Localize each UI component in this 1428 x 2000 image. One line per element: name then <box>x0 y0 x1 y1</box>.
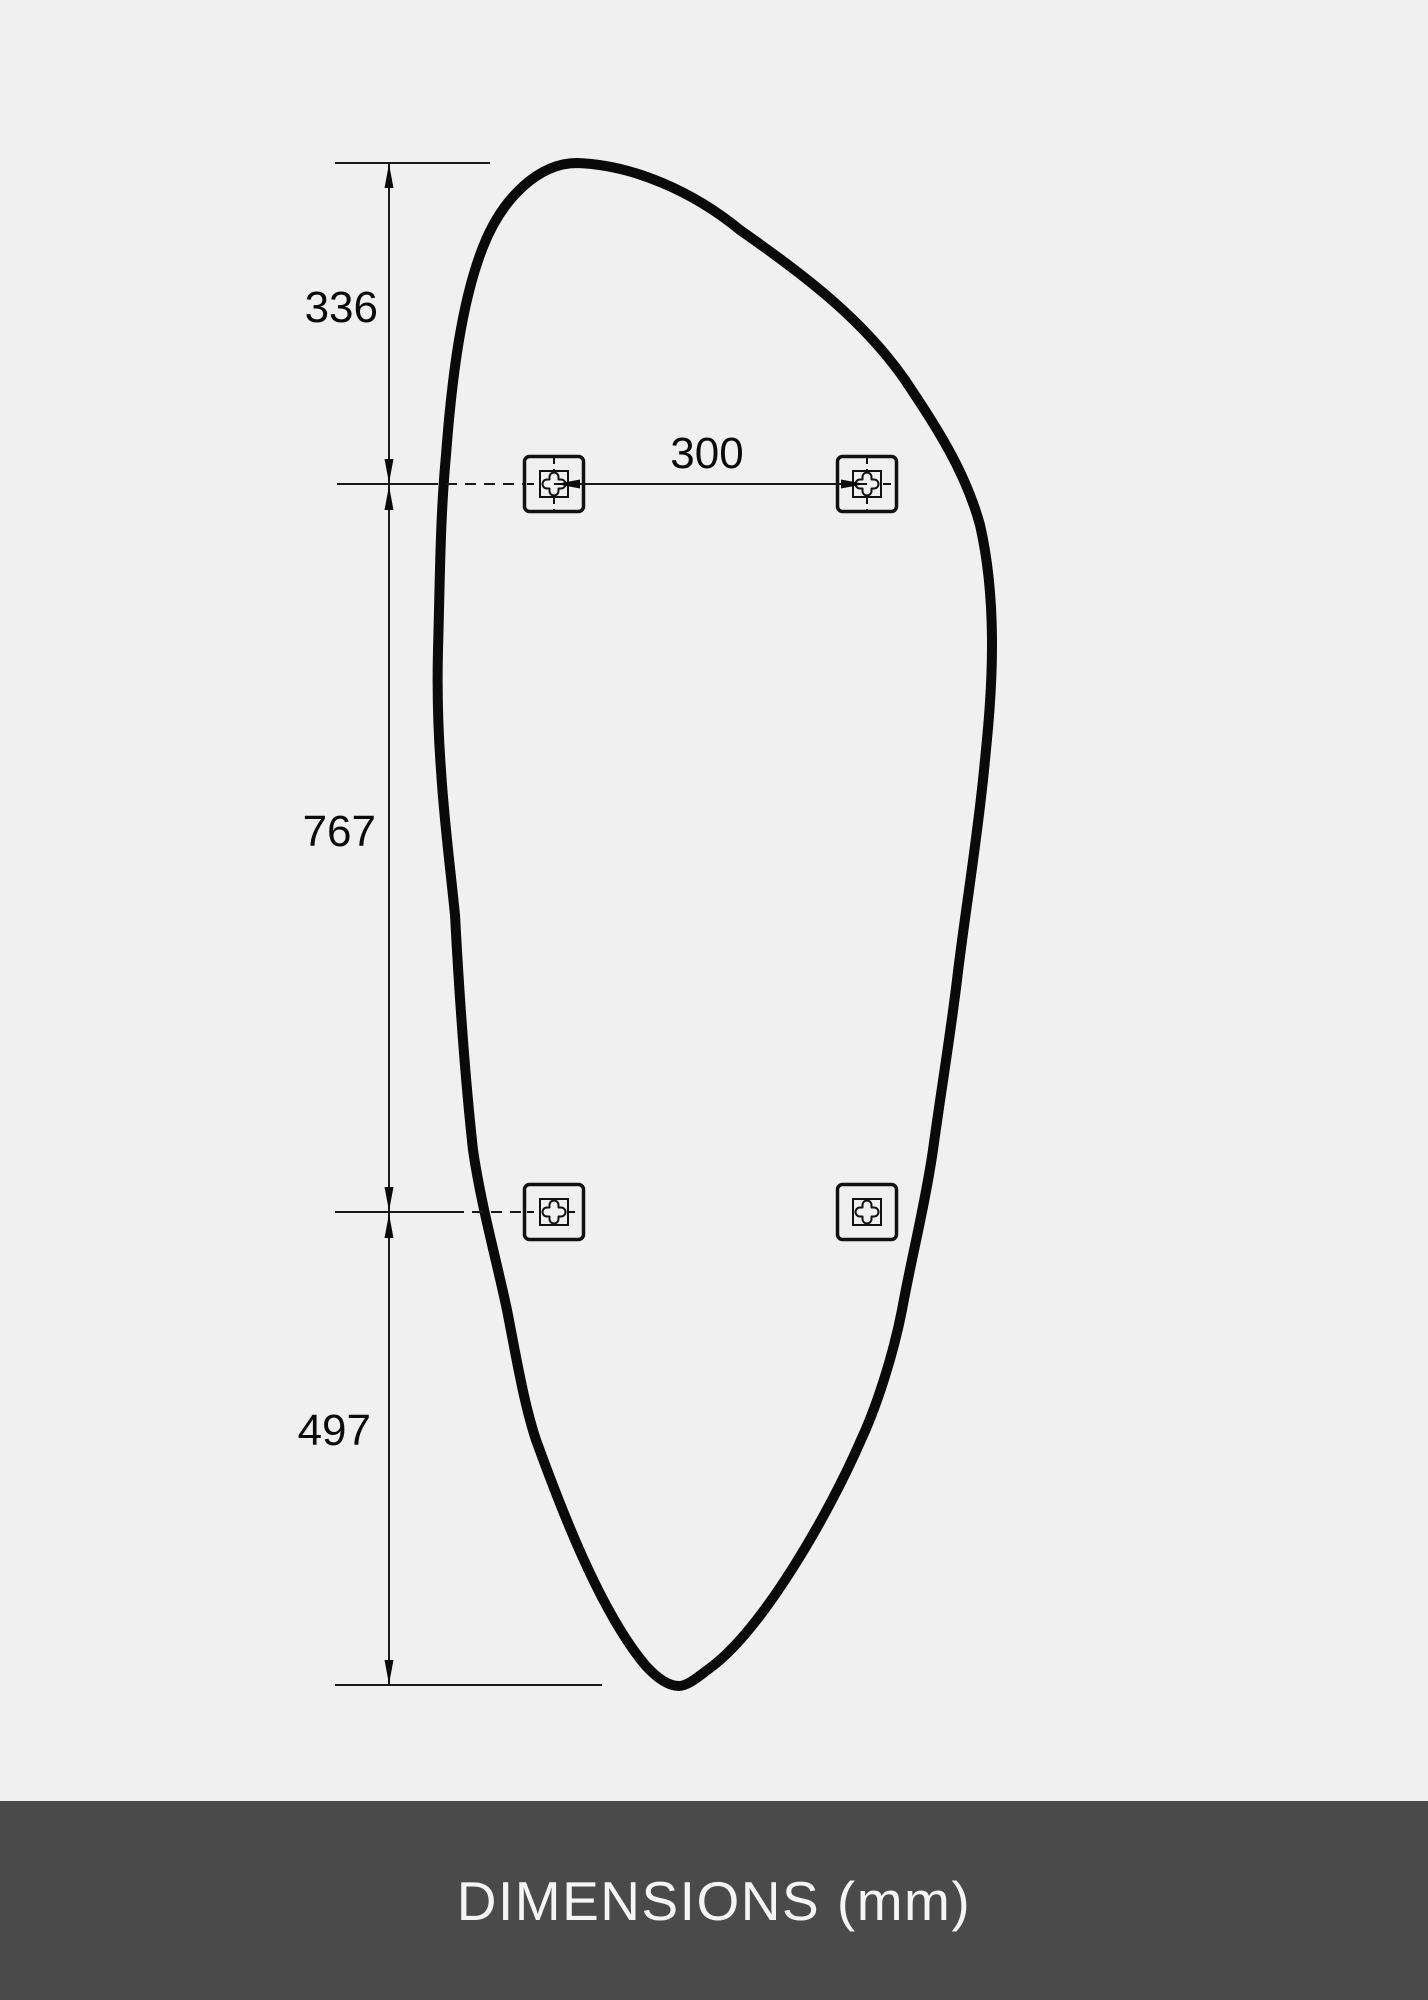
footer-bar: DIMENSIONS (mm) <box>0 1801 1428 2000</box>
arrowhead-up-lower <box>385 1214 394 1238</box>
mirror-outline <box>438 163 992 1686</box>
arrowhead-down-bottom <box>385 1660 394 1684</box>
arrowhead-down-middle <box>385 1187 394 1211</box>
dimension-sheet: 336 767 497 300 DIMENSIONS (mm) <box>0 0 1428 2000</box>
mounting-bracket-bottom-right-icon <box>838 1185 897 1240</box>
dimensions-caption: DIMENSIONS (mm) <box>457 1869 971 1933</box>
dimension-label-767: 767 <box>303 807 376 856</box>
vertical-dimension-chain <box>385 163 394 1685</box>
dimension-label-497: 497 <box>298 1406 371 1455</box>
mounting-bracket-bottom-left-icon <box>525 1185 584 1240</box>
dimension-drawing: 336 767 497 300 <box>0 0 1428 1801</box>
horizontal-dimension-300 <box>554 480 867 489</box>
arrowhead-up-top <box>385 164 394 188</box>
arrowhead-up-middle <box>385 486 394 510</box>
arrowhead-down-upper <box>385 459 394 483</box>
dimension-label-336: 336 <box>305 283 378 332</box>
dimension-label-300: 300 <box>670 429 743 478</box>
